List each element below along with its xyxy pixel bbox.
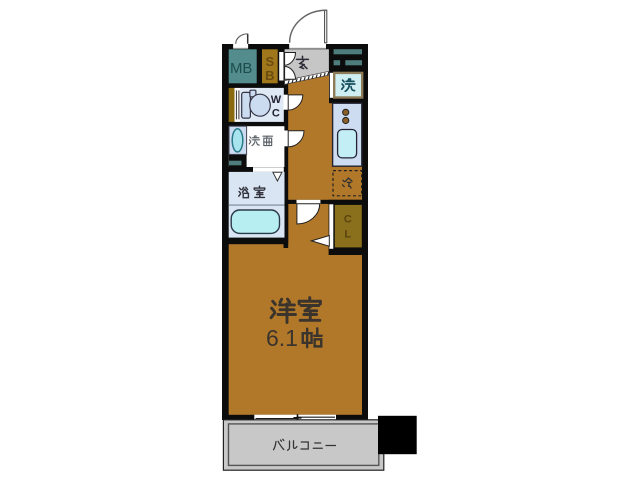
svg-text:C: C [344, 214, 352, 226]
svg-text:C: C [272, 108, 280, 120]
svg-text:L: L [344, 229, 351, 241]
svg-text:S: S [265, 54, 274, 69]
svg-text:MB: MB [230, 60, 253, 77]
svg-text:W: W [271, 94, 282, 106]
svg-text:6.1: 6.1 [266, 325, 298, 351]
svg-text:B: B [265, 68, 274, 83]
